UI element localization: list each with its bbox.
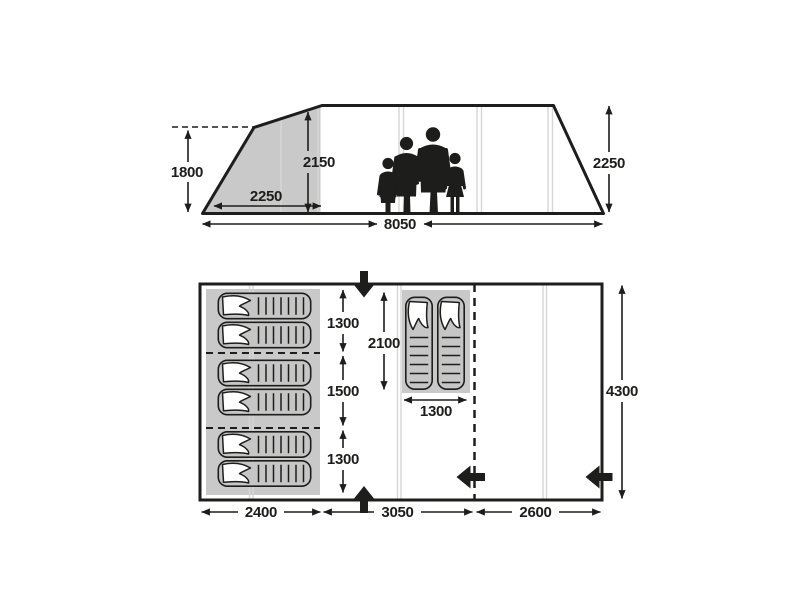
sleeping-bag (438, 297, 464, 389)
sleeping-bag (218, 293, 310, 318)
dim-label-total-length: 8050 (384, 216, 416, 233)
dim-label-mid-length: 2100 (368, 335, 400, 352)
dim-label-seg-top: 1300 (327, 315, 359, 332)
dim-label-total-depth: 4300 (606, 383, 638, 400)
dim-label-height-left: 1800 (171, 164, 203, 181)
dim-label-mid-width: 1300 (420, 403, 452, 420)
floor-plan-view: 1300 1500 1300 2100 1300 4300 2400 3050 … (200, 271, 638, 521)
sleeping-bag (406, 297, 432, 389)
sleeping-bag (218, 360, 310, 385)
dim-label-porch-width: 2250 (250, 188, 282, 205)
dim-label-seg-bottom: 1300 (327, 451, 359, 468)
sleeping-bag (218, 389, 310, 414)
sleeping-bag (218, 432, 310, 457)
dim-label-w-left: 2400 (245, 504, 277, 521)
diagram-canvas: 1800 2250 2150 8050 2250 (0, 0, 800, 600)
dim-label-w-right: 2600 (519, 504, 551, 521)
dim-label-seg-mid: 1500 (327, 383, 359, 400)
dim-label-height-right: 2250 (593, 155, 625, 172)
side-elevation-view: 1800 2250 2150 8050 2250 (171, 106, 625, 234)
dim-label-w-mid: 3050 (381, 504, 413, 521)
dim-label-inner-height: 2150 (303, 154, 335, 171)
sleeping-bags-left (218, 293, 310, 486)
tent-dimension-diagram: 1800 2250 2150 8050 2250 (0, 0, 800, 600)
sleeping-bag (218, 461, 310, 486)
sleeping-bag (218, 322, 310, 347)
